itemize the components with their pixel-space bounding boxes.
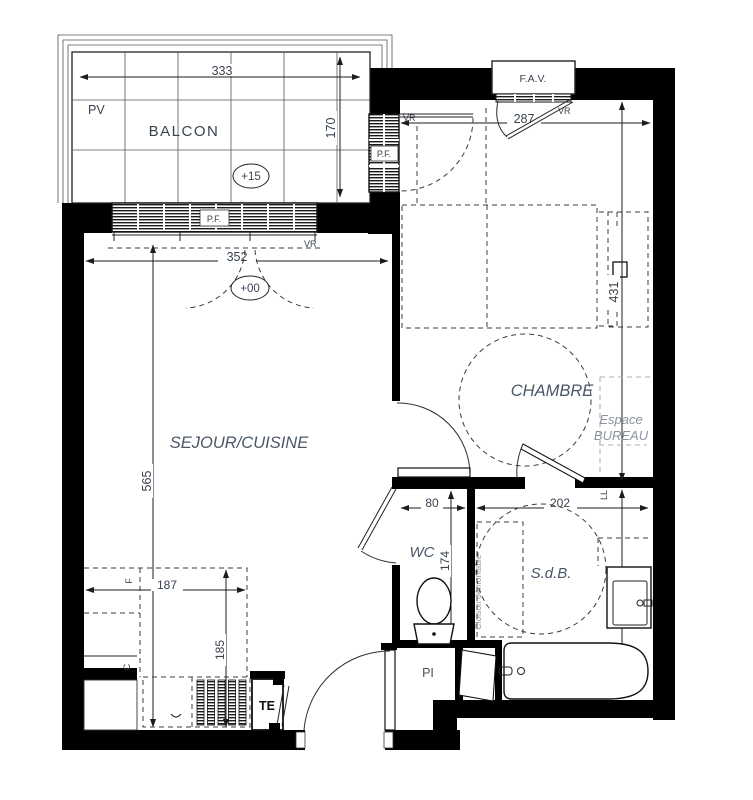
- dim-wc-height-group: 174: [438, 545, 452, 577]
- te-hinge-top: [273, 677, 284, 685]
- door-swing-french-right: [255, 250, 314, 308]
- room-label-sejour: SEJOUR/CUISINE: [170, 434, 309, 452]
- pi-door-leaf: [459, 650, 496, 701]
- wall-left: [62, 203, 84, 750]
- room-label-balcon: BALCON: [149, 123, 220, 140]
- sdb-door-leaf: [521, 444, 585, 483]
- hatch-bar: [197, 680, 204, 725]
- level-sejour: +00: [240, 283, 260, 295]
- dim-chambre-width: 287: [514, 112, 535, 126]
- hatch-bar: [239, 680, 246, 725]
- wall-balcony-right-block: [317, 203, 400, 233]
- dim-balcony-depth: 170: [324, 118, 338, 139]
- wc-sdb: 80 202 WC 174 Cloison démontable S.d.B. …: [358, 487, 652, 701]
- entry-jamb-left: [296, 732, 305, 748]
- wall-wc-top: [392, 477, 525, 489]
- pf-swing-arc: [400, 118, 473, 191]
- balcony: 333 170 PV BALCON +15: [58, 35, 392, 203]
- label-vr-fav: VR: [558, 106, 571, 116]
- level-balcony: +15: [241, 171, 261, 183]
- label-pv: PV: [88, 103, 105, 117]
- bathtub-icon: [499, 643, 648, 699]
- label-fridge-group: F: [124, 578, 134, 584]
- hatch-bar: [229, 680, 236, 725]
- wall-pf-jamb-top: [368, 100, 400, 114]
- dim-kitchen-height: 185: [213, 640, 227, 660]
- washbasin-counter: [607, 567, 651, 628]
- entry-jamb-right: [384, 732, 393, 748]
- wall-wc-left-lower: [392, 565, 400, 648]
- toilet-button: [432, 632, 436, 636]
- label-fridge: F: [124, 578, 134, 584]
- bathtub-outline: [504, 643, 648, 699]
- floor-plan-page: 333 170 PV BALCON +15 P.F. P.F. F.A.V. V…: [0, 0, 753, 800]
- sink-symbol: [171, 714, 181, 717]
- wc-door-swing: [361, 551, 396, 563]
- wall-sdb-bottom: [450, 700, 675, 718]
- room-label-chambre: CHAMBRE: [511, 382, 595, 400]
- chambre: 287 VR VR CHAMBRE 431 Espace BUREAU: [397, 99, 651, 483]
- fav-swing-arc: [497, 101, 507, 137]
- chambre-door-leaf: [398, 468, 470, 477]
- label-cloison: Cloison démontable: [473, 554, 483, 629]
- wall-sejour-chambre-partition: [392, 233, 400, 401]
- dim-chambre-height: 431: [607, 282, 621, 303]
- wall-bottom-right: [385, 730, 460, 750]
- dim-wc-height: 174: [438, 551, 452, 571]
- wc-door-leaf: [358, 487, 396, 550]
- wall-right: [653, 68, 675, 720]
- bed-dashed: [402, 205, 597, 328]
- label-ll-group: LL: [599, 490, 609, 500]
- toilet-bowl: [417, 578, 451, 624]
- niche-box: [84, 680, 137, 730]
- room-label-pi: PI: [422, 666, 434, 680]
- te-hinge-bottom: [269, 723, 280, 731]
- sejour-cuisine: VR 352 +00 SEJOUR/CUISINE 565 F C: [84, 239, 388, 730]
- room-label-sdb: S.d.B.: [531, 565, 572, 582]
- dim-sdb-width: 202: [550, 496, 570, 510]
- label-cooker-group: C: [122, 663, 132, 670]
- entry-door-swing: [304, 651, 390, 730]
- cloison-label-group: Cloison démontable: [473, 554, 483, 629]
- toilet-icon: [414, 578, 454, 644]
- sdb-door-swing: [517, 449, 521, 478]
- label-te: TE: [259, 699, 275, 713]
- label-ll: LL: [599, 490, 609, 500]
- floor-plan-drawing: 333 170 PV BALCON +15 P.F. P.F. F.A.V. V…: [0, 0, 753, 800]
- dim-wc-width: 80: [425, 496, 439, 510]
- kitchen-appliance-hatch: [197, 680, 246, 725]
- label-cooker: C: [122, 663, 132, 670]
- dim-kitchen-width: 187: [157, 578, 177, 592]
- wall-sdb-top: [575, 477, 655, 488]
- label-bureau-1: Espace: [599, 412, 642, 427]
- hatch-bar: [218, 680, 225, 725]
- label-fav: F.A.V.: [519, 73, 546, 85]
- dim-kitchen-height-group: 185: [213, 634, 227, 666]
- label-bureau-2: BUREAU: [594, 428, 649, 443]
- washbasin-icon: [607, 567, 652, 628]
- label-pf-chambre: P.F.: [377, 149, 391, 159]
- dim-sejour-height: 565: [140, 471, 154, 492]
- chambre-door-swing: [397, 403, 470, 475]
- dim-sejour-height-group: 565: [140, 464, 154, 498]
- hatch-bar: [208, 680, 215, 725]
- column-box: [613, 262, 627, 277]
- dim-balcony-width: 333: [212, 64, 233, 78]
- dim-balcony-depth-group: 170: [324, 111, 338, 145]
- dim-chambre-height-group: 431: [607, 275, 621, 309]
- room-label-wc: WC: [410, 544, 435, 561]
- wall-bottom-left: [62, 730, 305, 750]
- label-pf-sejour: P.F.: [207, 214, 221, 224]
- entry-door-jamb: [381, 643, 397, 650]
- entry-door-leaf: [385, 650, 395, 730]
